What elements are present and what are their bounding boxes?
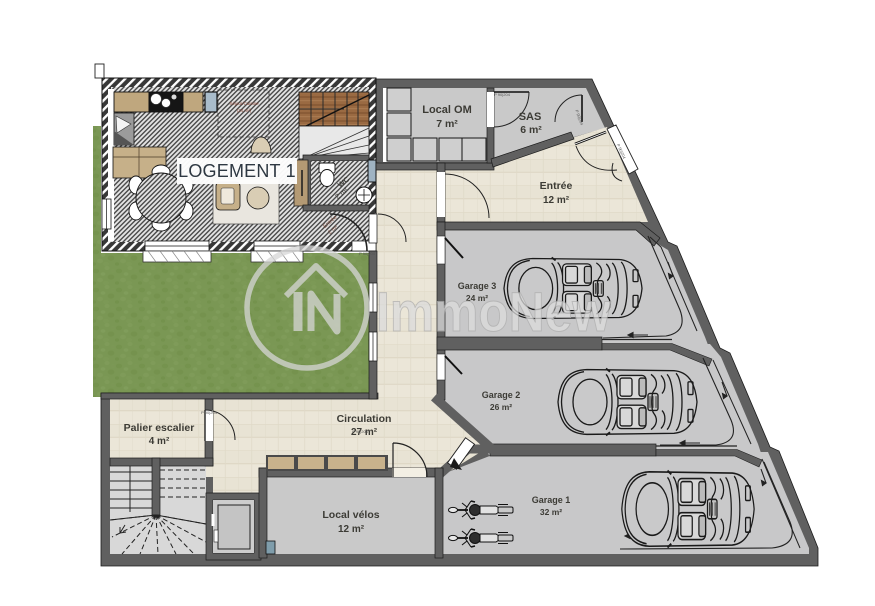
svg-text:LOGEMENT 1: LOGEMENT 1 bbox=[178, 161, 296, 181]
svg-text:P 90|204: P 90|204 bbox=[201, 410, 218, 415]
svg-text:P 90|204: P 90|204 bbox=[494, 92, 511, 97]
svg-text:6 m²: 6 m² bbox=[520, 124, 542, 136]
svg-text:P 90|204: P 90|204 bbox=[359, 251, 376, 256]
svg-text:Séjour/Cuisine: Séjour/Cuisine bbox=[229, 101, 259, 106]
svg-text:32 m²: 32 m² bbox=[540, 507, 562, 517]
svg-text:P 90|204: P 90|204 bbox=[352, 429, 369, 434]
svg-text:Garage 2: Garage 2 bbox=[482, 390, 521, 400]
svg-text:Local OM: Local OM bbox=[422, 104, 472, 116]
svg-text:Circulation: Circulation bbox=[337, 413, 392, 425]
svg-text:Local vélos: Local vélos bbox=[322, 509, 379, 521]
svg-text:12 m²: 12 m² bbox=[338, 524, 365, 535]
svg-text:4 m²: 4 m² bbox=[149, 436, 170, 447]
svg-text:ImmoNew: ImmoNew bbox=[376, 280, 611, 343]
svg-text:Palier escalier: Palier escalier bbox=[124, 422, 195, 434]
svg-text:SAS: SAS bbox=[519, 111, 542, 123]
svg-text:7 m²: 7 m² bbox=[436, 118, 458, 130]
svg-text:26 m²: 26 m² bbox=[490, 402, 512, 412]
svg-text:12 m²: 12 m² bbox=[543, 195, 570, 206]
svg-text:Garage 1: Garage 1 bbox=[532, 495, 571, 505]
svg-text:Entrée: Entrée bbox=[540, 180, 573, 192]
svg-text:(34 m²): (34 m²) bbox=[237, 108, 252, 113]
